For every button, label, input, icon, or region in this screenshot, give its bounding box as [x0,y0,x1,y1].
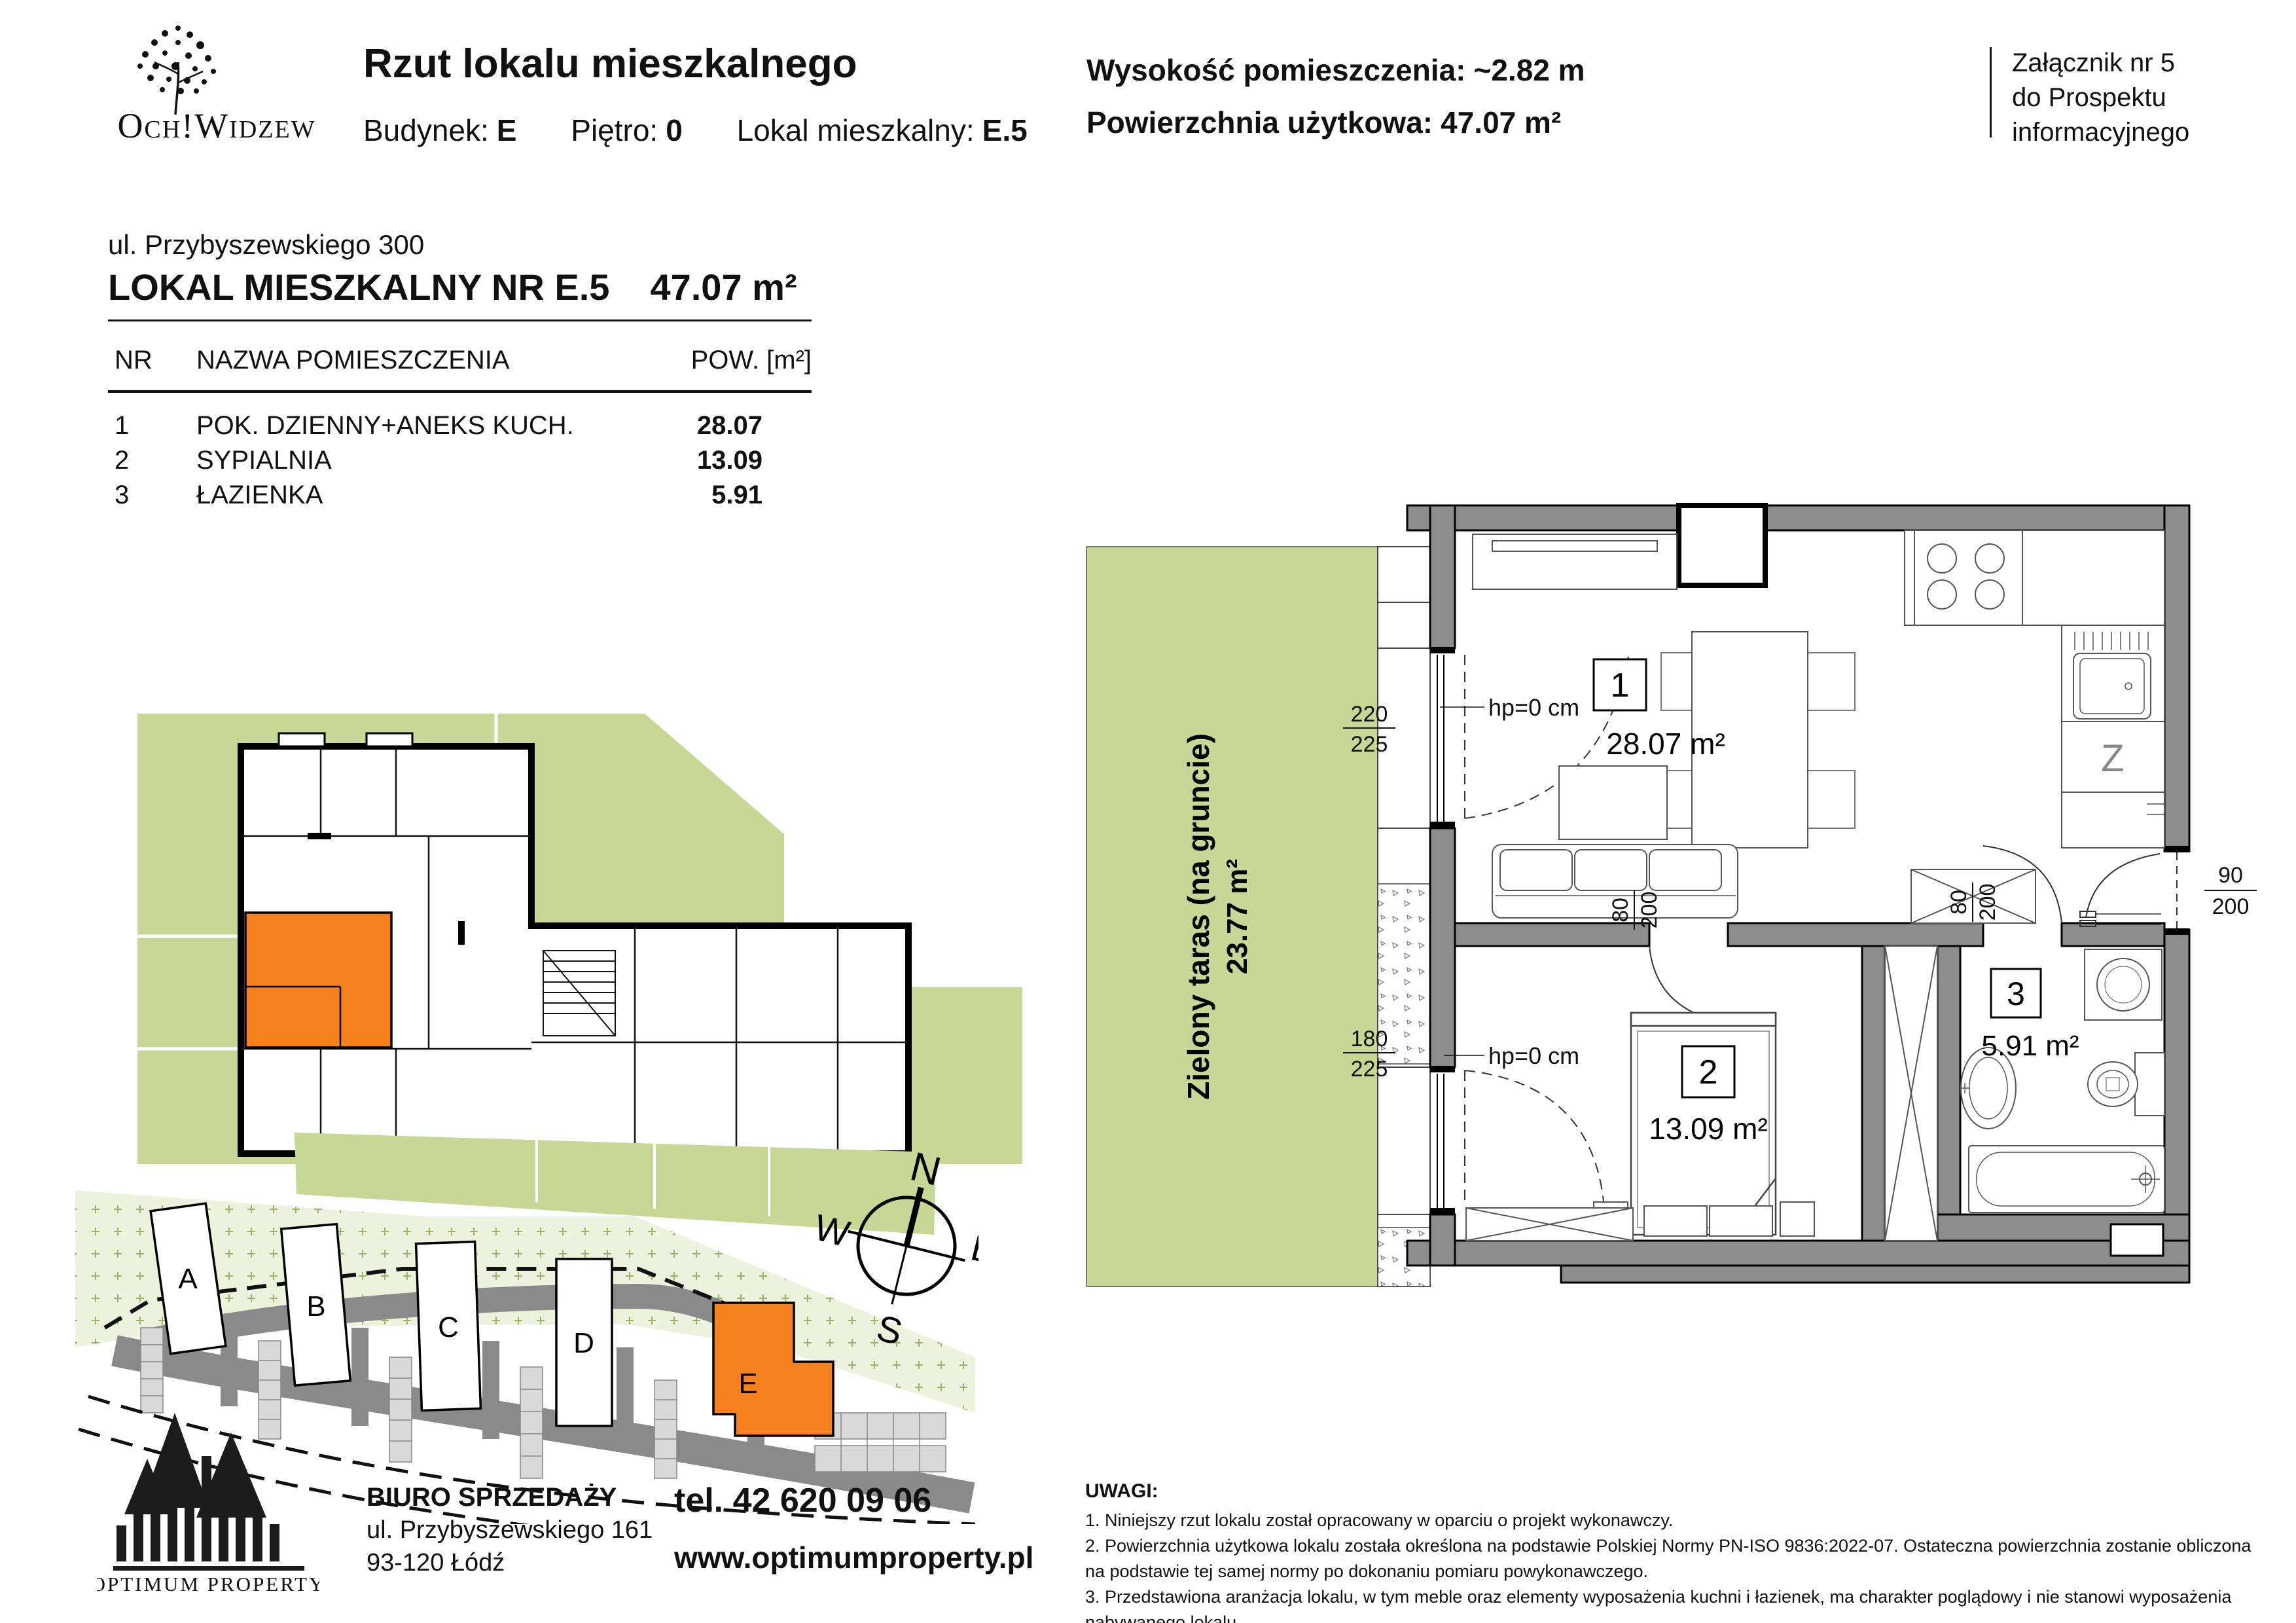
unit-value: E.5 [982,113,1028,147]
washing-machine-icon [2085,949,2162,1020]
room3-label: 3 5.91 m² [1981,969,2079,1062]
agency-wordmark: OPTIMUM PROPERTY [97,1573,319,1596]
dim-200c: 200 [1975,884,2000,921]
room3-area: 5.91 m² [1981,1030,2079,1062]
dim-entry-door: 90 200 [2204,863,2257,919]
row2-nr: 2 [115,446,129,475]
unit-label: Lokal mieszkalny: [737,113,975,147]
building-value: E [497,113,517,147]
unit-title-area: 47.07 m² [650,266,797,308]
table-rule-header [108,390,812,393]
skyline-icon [113,1456,304,1571]
note-1: 1. Niniejszy rzut lokalu został opracowa… [1085,1508,2263,1533]
table-row: 1 POK. DZIENNY+ANEKS KUCH. 28.07 [108,411,812,446]
usable-area-line: Powierzchnia użytkowa:47.07 m² [1086,105,1561,140]
area-label: Powierzchnia użytkowa: [1086,105,1433,139]
attachment-divider [1990,47,1992,137]
col-area: POW. [m²] [691,346,812,375]
row3-name: ŁAZIENKA [196,481,323,510]
attachment-line1: Załącznik nr 5 [2012,46,2189,81]
page-title: Rzut lokalu mieszkalnego [363,41,857,87]
sales-office-block: BIURO SPRZEDAŻY ul. Przybyszewskiego 161… [367,1481,653,1579]
building-a-label: A [178,1263,198,1295]
dim-220: 220 [1351,702,1388,727]
developer-logo: Och!Widzew [92,16,340,147]
attachment-line3: informacyjnego [2012,115,2189,150]
row3-nr: 3 [115,481,129,510]
room-table: 1 POK. DZIENNY+ANEKS KUCH. 28.07 2 SYPIA… [108,411,812,515]
notes-block: UWAGI: 1. Niniejszy rzut lokalu został o… [1085,1478,2263,1623]
dim-200b: 200 [1637,892,1662,929]
street-address: ul. Przybyszewskiego 300 [108,229,424,261]
dim-225b: 225 [1351,1057,1388,1082]
bathtub-icon [1969,1146,2164,1213]
shaft-box [1679,505,1765,585]
table-rule-top [108,319,812,321]
note-3: 3. Przedstawiona aranżacja lokalu, w tym… [1085,1584,2263,1623]
row1-nr: 1 [115,411,129,441]
sales-office-title: BIURO SPRZEDAŻY [367,1481,653,1514]
room2-number: 2 [1699,1053,1718,1091]
height-label: Wysokość pomieszczenia: [1086,53,1465,87]
terrace-area: 23.77 m² [1221,859,1253,974]
hp-top: hp=0 cm [1488,694,1579,721]
floor-plan-document: Och!Widzew Rzut lokalu mieszkalnego Budy… [0,0,2296,1623]
row3-area: 5.91 [711,481,762,510]
dishwasher-zone: Z [2062,721,2164,848]
stairwell-icon [543,951,615,1036]
compass-n: N [906,1144,945,1195]
building-e-label: E [738,1368,757,1400]
dim-80a: 80 [1608,898,1633,922]
note-2: 2. Powierzchnia użytkowa lokalu została … [1085,1533,2263,1584]
row1-name: POK. DZIENNY+ANEKS KUCH. [196,411,574,441]
room-height-line: Wysokość pomieszczenia:~2.82 m [1086,52,1585,88]
hp-bottom: hp=0 cm [1488,1042,1579,1069]
dim-90: 90 [2218,863,2243,888]
notes-title: UWAGI: [1085,1478,2263,1504]
kitchen-z-label: Z [2101,737,2124,780]
tv-cabinet [1473,534,1677,589]
building-b-label: B [306,1290,325,1322]
dim-200a: 200 [2212,894,2250,919]
row1-area: 28.07 [697,411,762,441]
floor-label: Piętro: [571,113,658,147]
coffee-table [1559,766,1667,839]
toilet-icon [2088,1053,2164,1116]
terrace-label: Zielony taras (na gruncie) [1181,733,1215,1100]
website-link[interactable]: www.optimumproperty.pl [674,1540,1033,1575]
col-nr: NR [115,346,152,375]
building-c-label: C [438,1311,459,1343]
sales-office-address1: ul. Przybyszewskiego 161 [367,1514,653,1546]
facade-strip [1378,547,1430,1286]
room3-number: 3 [2007,976,2025,1012]
room2-area: 13.09 m² [1649,1112,1768,1146]
row2-area: 13.09 [697,446,762,475]
table-row: 3 ŁAZIENKA 5.91 [108,481,812,515]
tall-wardrobe [1885,946,1937,1241]
col-name: NAZWA POMIESZCZENIA [196,346,510,375]
floor-value: 0 [666,113,683,147]
logo-wordmark: Och!Widzew [117,106,315,145]
compass-e: E [967,1226,978,1272]
row2-name: SYPIALNIA [196,446,332,475]
dim-80b: 80 [1946,890,1971,915]
unit-title-line: LOKAL MIESZKALNY NR E.547.07 m² [108,266,797,308]
tree-icon [137,26,216,115]
dim-180: 180 [1351,1027,1388,1051]
dim-225a: 225 [1351,732,1388,757]
room1-area: 28.07 m² [1606,727,1725,761]
building-label: Budynek: [363,113,489,147]
entry-door [2080,852,2177,928]
unit-title: LOKAL MIESZKALNY NR E.5 [108,266,609,308]
building-d-label: D [573,1327,594,1359]
sales-office-address2: 93-120 Łódź [367,1546,653,1579]
highlighted-unit [245,913,391,1048]
attachment-line2: do Prospektu [2012,81,2189,115]
agency-logo: OPTIMUM PROPERTY [97,1455,319,1596]
building-location-plan [92,695,1047,1167]
room1-number: 1 [1611,666,1630,704]
area-value: 47.07 m² [1441,105,1561,139]
table-row: 2 SYPIALNIA 13.09 [108,446,812,481]
wall-notch [2111,1224,2163,1256]
phone-number[interactable]: tel. 42 620 09 06 [674,1481,931,1520]
apartment-floor-plan: Zielony taras (na gruncie) 23.77 m² [1073,491,2296,1309]
unit-meta-line: Budynek:E Piętro:0 Lokal mieszkalny:E.5 [363,113,1028,148]
attachment-note: Załącznik nr 5 do Prospektu informacyjne… [2012,46,2189,150]
height-value: ~2.82 m [1473,53,1585,87]
bedroom-chest [1466,1208,1633,1241]
terrace: Zielony taras (na gruncie) 23.77 m² [1086,547,1378,1286]
